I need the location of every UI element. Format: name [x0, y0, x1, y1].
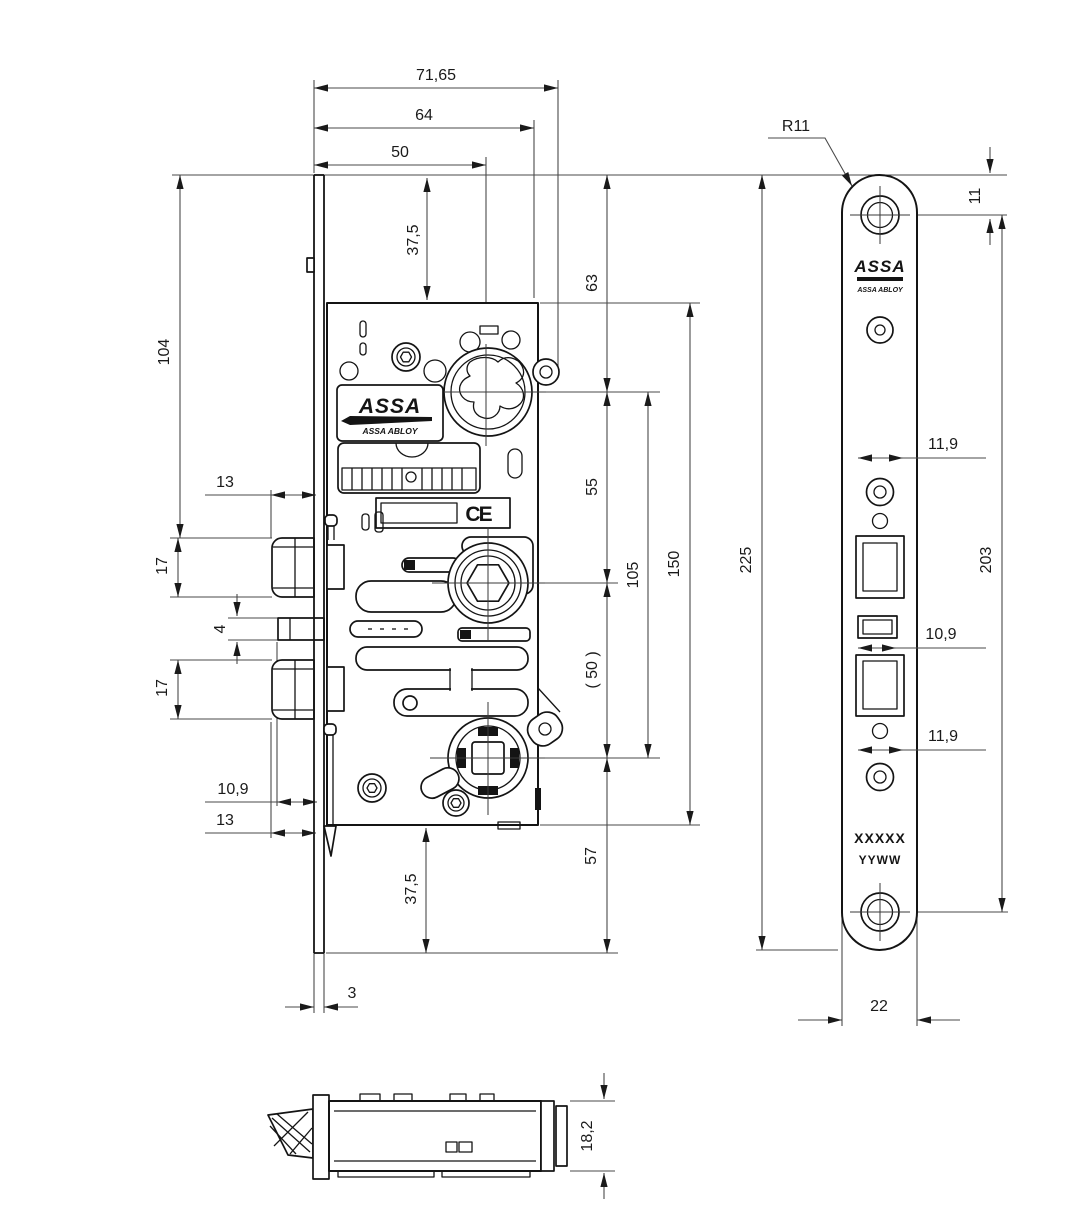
aux-bolt [278, 618, 324, 640]
bottom-latch-wedge [268, 1109, 313, 1158]
faceplate-logo: ASSA ASSA ABLOY [853, 257, 905, 294]
faceplate-marking-2: YYWW [859, 853, 902, 867]
spring-pack [338, 443, 480, 493]
dim-case-thickness: 18,2 [579, 1120, 596, 1151]
latch-cutout [856, 536, 904, 598]
dim-top-to-latch: 104 [156, 339, 173, 366]
latch-bolt [272, 538, 344, 597]
dim-aux-cutout-width: 10,9 [925, 626, 956, 643]
ce-mark-box: CE [376, 498, 510, 528]
aux-cutout [858, 616, 897, 638]
technical-drawing-page: ASSA ASSA ABLOY CE [0, 0, 1080, 1205]
front-logo-primary: ASSA [358, 395, 421, 418]
dim-deadbolt-cutout-width: 11,9 [928, 728, 958, 745]
dim-faceplate-thickness: 3 [348, 985, 357, 1002]
bottom-dimensions: 18,2 [570, 1073, 615, 1199]
dim-cylinder-to-spindle: 105 [625, 562, 642, 589]
dim-spindle-to-bottom: 57 [583, 847, 600, 865]
dim-hub-to-spindle: ( 50 ) [584, 651, 601, 688]
dim-latch-cutout-width: 11,9 [928, 436, 958, 453]
dim-total-depth: 71,65 [416, 67, 456, 84]
ce-mark-label: CE [465, 503, 492, 526]
dim-screw-spacing: 203 [978, 547, 995, 574]
dim-plate-width: 22 [870, 998, 888, 1015]
faceplate-view: ASSA ASSA ABLOY XXXXX [738, 118, 1008, 1026]
dim-case-height: 150 [666, 551, 683, 578]
dim-latch-protrusion: 13 [216, 474, 234, 491]
dim-deadbolt-protrusion: 13 [216, 812, 234, 829]
dim-top-margin: 37,5 [405, 224, 422, 255]
dim-latch-height: 17 [154, 557, 171, 575]
rear-tab-top [533, 359, 559, 385]
left-slot [356, 581, 456, 612]
rear-notch [535, 788, 541, 810]
dim-cylinder-to-hub: 55 [584, 478, 601, 496]
bottom-faceplate-bar [313, 1095, 329, 1179]
front-logo-plate: ASSA ASSA ABLOY [337, 385, 443, 441]
dim-aux-height: 4 [212, 624, 229, 633]
front-logo-secondary: ASSA ABLOY [361, 426, 418, 436]
screw-boss-bottom [358, 774, 386, 802]
dim-screw-to-top: 11 [967, 188, 984, 205]
dim-deadbolt-height: 17 [154, 679, 171, 697]
faceplate-marking-1: XXXXX [854, 830, 906, 846]
screw-boss-top [392, 343, 420, 371]
dim-aux-protrusion: 10,9 [217, 781, 248, 798]
faceplate-logo-primary: ASSA [853, 257, 905, 276]
deadbolt-cutout [856, 655, 904, 716]
faceplate-logo-secondary: ASSA ABLOY [856, 287, 904, 294]
dim-top-to-cylinder: 63 [584, 274, 601, 292]
lock-technical-drawing: ASSA ASSA ABLOY CE [0, 0, 1080, 1205]
dim-plate-height: 225 [738, 547, 755, 574]
bottom-view: 18,2 [268, 1073, 615, 1199]
dim-backset: 50 [391, 144, 409, 161]
bottom-case [329, 1094, 567, 1177]
dim-corner-radius: R11 [782, 118, 810, 135]
dim-case-depth: 64 [415, 107, 433, 124]
dim-bottom-margin: 37,5 [403, 873, 420, 904]
deadbolt [272, 660, 344, 719]
